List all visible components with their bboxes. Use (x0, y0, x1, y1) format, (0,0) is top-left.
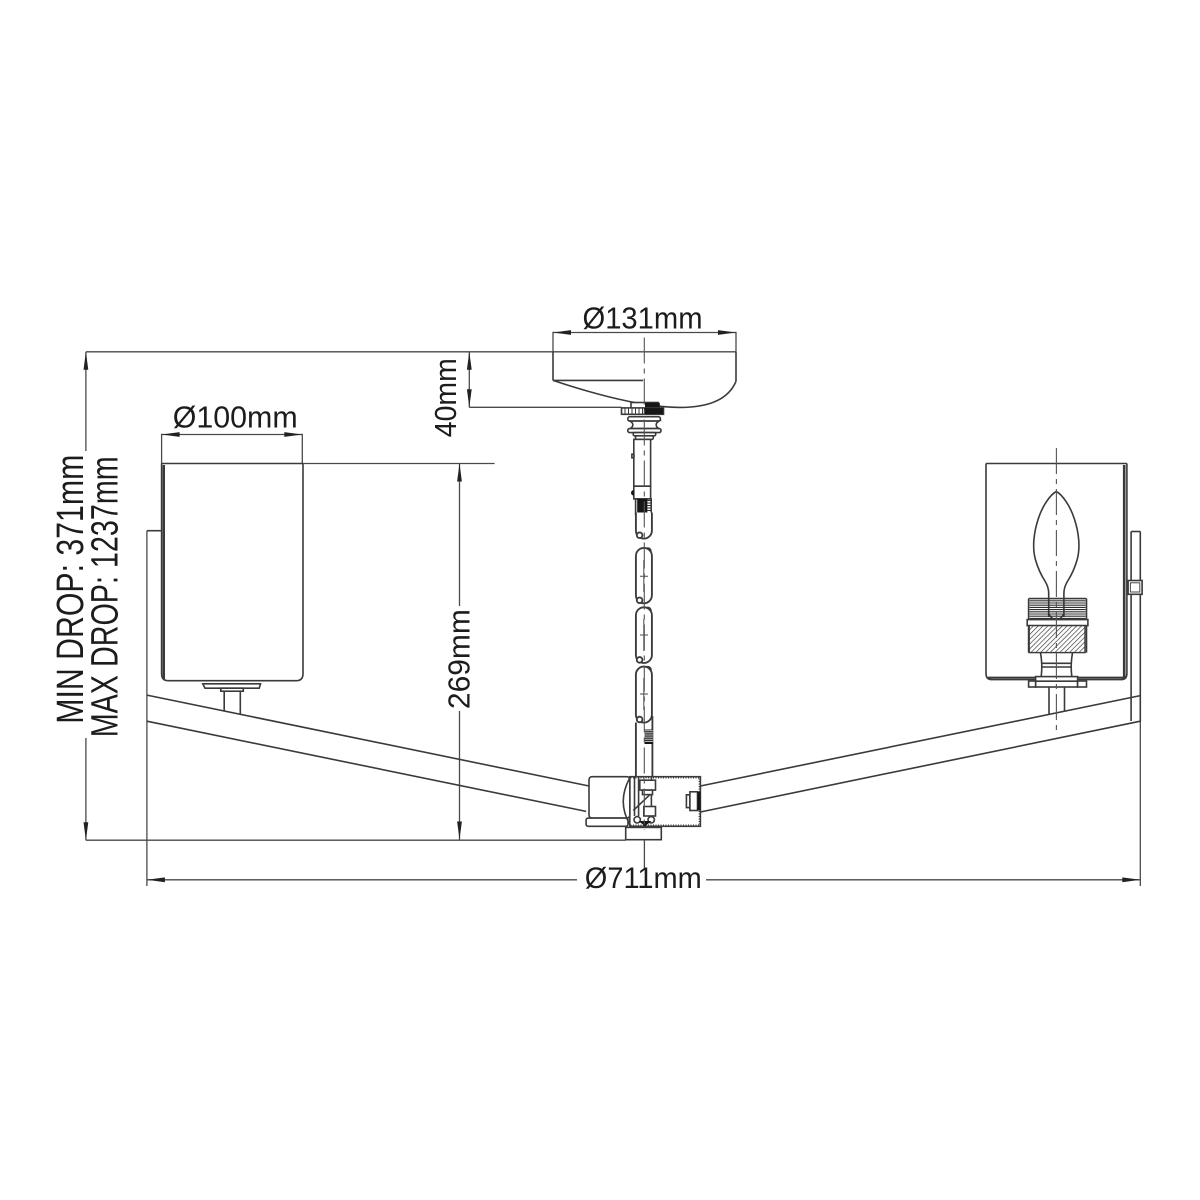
svg-text:Ø100mm: Ø100mm (173, 399, 298, 434)
svg-text:269mm: 269mm (442, 609, 477, 709)
svg-text:Ø131mm: Ø131mm (583, 301, 703, 336)
svg-text:Ø711mm: Ø711mm (585, 862, 702, 895)
svg-text:MAX DROP: 1237mm: MAX DROP: 1237mm (85, 456, 127, 737)
svg-text:40mm: 40mm (428, 358, 463, 437)
